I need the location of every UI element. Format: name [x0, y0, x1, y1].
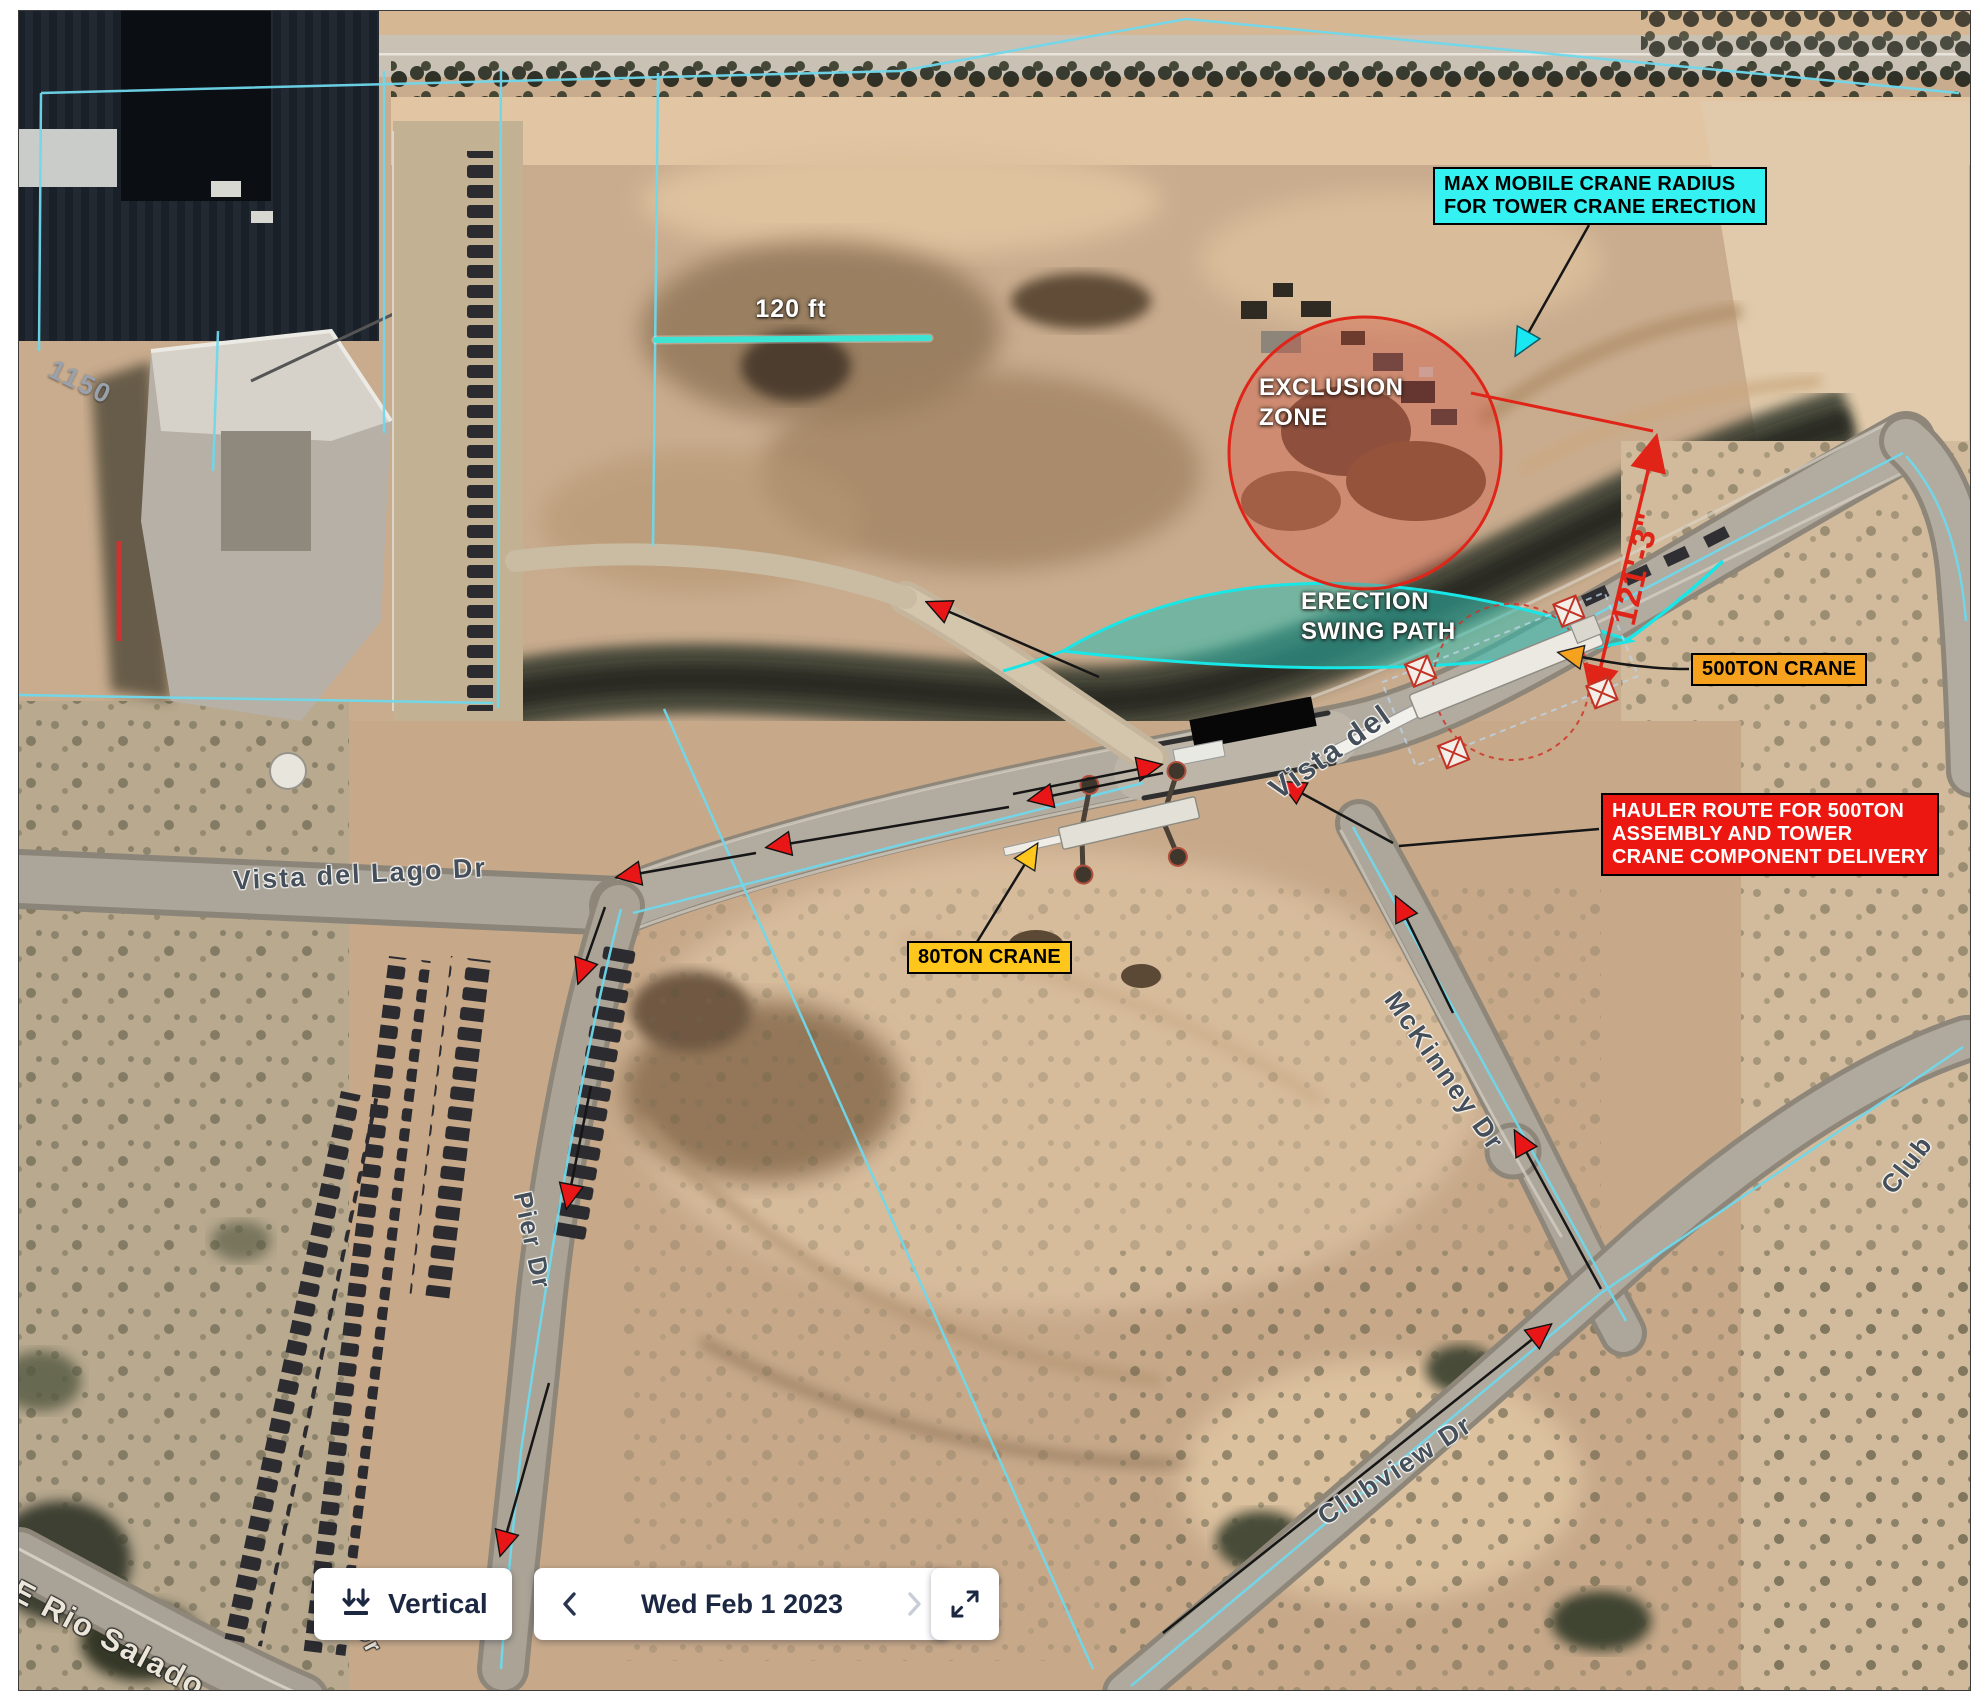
- max-crane-radius-label: MAX MOBILE CRANE RADIUS FOR TOWER CRANE …: [1433, 167, 1767, 225]
- crane-500t-label: 500TON CRANE: [1691, 653, 1867, 686]
- vertical-view-button[interactable]: Vertical: [314, 1568, 512, 1640]
- exclusion-zone-circle: [1229, 317, 1501, 589]
- chevron-right-icon[interactable]: [898, 1584, 932, 1624]
- erection-swing-path-label: ERECTION SWING PATH: [1301, 587, 1456, 647]
- site-map[interactable]: 121'-3": [18, 10, 1971, 1691]
- exclusion-zone-label: EXCLUSION ZONE: [1259, 373, 1404, 433]
- scale-bar: [656, 338, 929, 340]
- scale-bar-label: 120 ft: [661, 295, 921, 324]
- chevron-left-icon[interactable]: [552, 1584, 586, 1624]
- vertical-button-label: Vertical: [388, 1588, 488, 1620]
- hauler-route-label: HAULER ROUTE FOR 500TON ASSEMBLY AND TOW…: [1601, 793, 1939, 876]
- double-down-arrow-icon: [338, 1587, 374, 1621]
- date-picker[interactable]: Wed Feb 1 2023: [534, 1568, 950, 1640]
- crane-80t-label: 80TON CRANE: [907, 941, 1072, 974]
- fullscreen-button[interactable]: [931, 1568, 999, 1640]
- date-label: Wed Feb 1 2023: [641, 1589, 843, 1620]
- expand-icon: [949, 1588, 981, 1620]
- map-viewport: 121'-3": [18, 10, 1971, 1691]
